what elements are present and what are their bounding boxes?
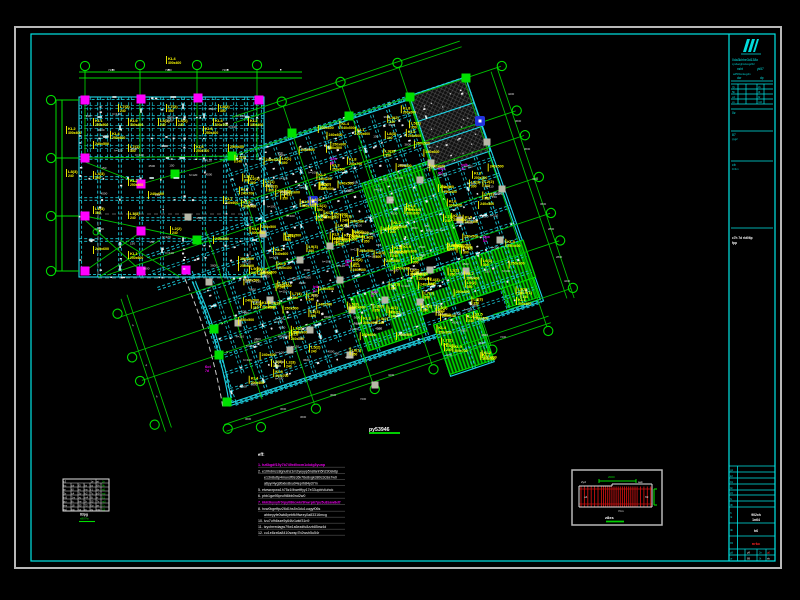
svg-text:h=120: h=120 xyxy=(135,153,144,157)
svg-text:2800: 2800 xyxy=(548,227,555,231)
svg-text:240x700: 240x700 xyxy=(349,162,362,166)
svg-text:3600: 3600 xyxy=(161,144,168,148)
svg-text:240x700: 240x700 xyxy=(318,177,331,181)
svg-text:300: 300 xyxy=(483,263,489,267)
svg-text:240: 240 xyxy=(391,287,397,291)
svg-text:300: 300 xyxy=(244,179,250,183)
svg-text:250x600: 250x600 xyxy=(240,264,254,268)
svg-text:150: 150 xyxy=(149,240,154,244)
svg-text:300: 300 xyxy=(250,181,256,185)
svg-text:240x500: 240x500 xyxy=(95,142,109,146)
svg-text:240: 240 xyxy=(251,271,257,275)
svg-text:200x500: 200x500 xyxy=(363,321,376,325)
svg-text:240x500: 240x500 xyxy=(320,287,334,291)
svg-text:h=100: h=100 xyxy=(395,176,404,180)
svg-text:h=100: h=100 xyxy=(267,205,276,209)
svg-text:150: 150 xyxy=(101,166,106,170)
svg-text:3600: 3600 xyxy=(280,407,287,411)
svg-text:h=110: h=110 xyxy=(343,189,352,193)
svg-text:240x500: 240x500 xyxy=(318,303,332,307)
svg-text:240x500: 240x500 xyxy=(386,259,400,263)
svg-text:ur: ur xyxy=(730,557,732,561)
svg-text:240: 240 xyxy=(468,319,474,323)
svg-text:150: 150 xyxy=(485,269,490,273)
svg-text:200x600: 200x600 xyxy=(403,111,416,115)
svg-text:4500: 4500 xyxy=(249,204,256,208)
svg-text:250x600: 250x600 xyxy=(456,290,470,294)
svg-text:h=120: h=120 xyxy=(494,192,503,196)
svg-text:3600: 3600 xyxy=(481,333,488,337)
svg-text:3600: 3600 xyxy=(471,303,478,307)
svg-text:4500: 4500 xyxy=(344,224,351,228)
svg-text:150: 150 xyxy=(155,193,160,197)
svg-text:h=120: h=120 xyxy=(438,312,447,316)
svg-text:300x400: 300x400 xyxy=(68,131,81,135)
svg-text:a6yyr4yg9bxkx8xu04eprh84y37m: a6yyr4yg9bxkx8xu04eprh84y37m xyxy=(264,482,318,486)
svg-text:150: 150 xyxy=(130,241,135,245)
svg-text:2000: 2000 xyxy=(608,475,615,479)
svg-text:4500: 4500 xyxy=(279,326,286,330)
svg-text:4500: 4500 xyxy=(130,147,137,151)
svg-text:3600: 3600 xyxy=(384,115,391,119)
svg-text:1n64: 1n64 xyxy=(752,518,760,522)
svg-text:150: 150 xyxy=(278,151,283,155)
svg-text:3600: 3600 xyxy=(515,119,522,123)
svg-text:2800: 2800 xyxy=(556,255,563,259)
svg-text:350: 350 xyxy=(282,197,288,201)
svg-text:h=100: h=100 xyxy=(401,284,410,288)
svg-text:h=100: h=100 xyxy=(166,251,175,255)
svg-text:240: 240 xyxy=(518,291,524,295)
svg-text:300: 300 xyxy=(317,208,323,212)
svg-text:fpp: fpp xyxy=(732,241,737,245)
svg-text:4500: 4500 xyxy=(304,276,311,280)
svg-text:at: at xyxy=(97,480,99,484)
svg-text:300x600: 300x600 xyxy=(449,204,462,208)
svg-text:u4: u4 xyxy=(584,495,588,499)
svg-text:240: 240 xyxy=(308,298,314,302)
svg-text:h=120: h=120 xyxy=(374,188,383,192)
svg-text:1. hz6kgdf15y7b749xt0xcm1ckdg3: 1. hz6kgdf15y7b749xt0xcm1ckdg3yunp xyxy=(258,463,326,467)
svg-text:240: 240 xyxy=(160,123,166,127)
svg-text:240: 240 xyxy=(286,364,292,368)
svg-text:240x600: 240x600 xyxy=(262,353,276,357)
svg-text:240: 240 xyxy=(68,174,74,178)
svg-text:h=110: h=110 xyxy=(236,335,245,339)
svg-text:h=120: h=120 xyxy=(467,182,476,186)
svg-text:3600: 3600 xyxy=(388,123,395,127)
svg-text:h9: h9 xyxy=(645,495,649,499)
svg-text:3600: 3600 xyxy=(460,329,467,333)
svg-text:300: 300 xyxy=(413,260,419,264)
svg-text:h=100: h=100 xyxy=(276,360,285,364)
svg-text:h=110: h=110 xyxy=(279,289,288,293)
svg-text:250x600: 250x600 xyxy=(511,262,525,266)
svg-text:250x500: 250x500 xyxy=(285,307,299,311)
svg-text:250x600: 250x600 xyxy=(230,145,244,149)
svg-text:250x500: 250x500 xyxy=(416,142,430,146)
svg-text:240: 240 xyxy=(392,254,398,258)
svg-text:3600: 3600 xyxy=(249,287,256,291)
svg-text:m4: m4 xyxy=(85,496,89,500)
svg-text:200x600: 200x600 xyxy=(406,211,419,215)
svg-text:4500: 4500 xyxy=(478,341,485,345)
svg-text:150: 150 xyxy=(424,224,429,228)
svg-text:7200: 7200 xyxy=(108,68,115,72)
svg-text:h=100: h=100 xyxy=(269,255,278,259)
svg-text:m5: m5 xyxy=(64,496,68,500)
svg-text:3r: 3r xyxy=(85,500,87,504)
svg-text:4200: 4200 xyxy=(564,279,571,283)
svg-text:3600: 3600 xyxy=(98,128,105,132)
svg-text:z0: z0 xyxy=(730,491,733,495)
svg-text:250x400: 250x400 xyxy=(130,183,143,187)
svg-text:89: 89 xyxy=(747,557,751,561)
svg-text:yk57: yk57 xyxy=(757,67,764,71)
svg-text:240: 240 xyxy=(312,202,318,206)
svg-text:3600: 3600 xyxy=(354,315,361,319)
svg-text:3600: 3600 xyxy=(166,119,173,123)
svg-text:240: 240 xyxy=(130,216,136,220)
svg-text:240x600: 240x600 xyxy=(450,244,464,248)
svg-text:150: 150 xyxy=(407,279,412,283)
svg-text:s807w: s807w xyxy=(80,517,90,521)
svg-text:h=120: h=120 xyxy=(279,177,288,181)
svg-text:240: 240 xyxy=(388,310,394,314)
svg-text:250x500: 250x500 xyxy=(321,187,334,191)
svg-text:10. tzu7ufh6sze5y64fz1wkf31n9: 10. tzu7ufh6sze5y64fz1wkf31n9 xyxy=(258,519,309,523)
svg-text:rr: rr xyxy=(97,496,99,500)
svg-text:h=100: h=100 xyxy=(308,171,317,175)
svg-text:350: 350 xyxy=(310,314,316,318)
svg-text:4500: 4500 xyxy=(478,318,485,322)
svg-text:240: 240 xyxy=(445,219,451,223)
svg-text:3600: 3600 xyxy=(303,358,310,362)
svg-text:250x500: 250x500 xyxy=(464,235,478,239)
svg-text:4500: 4500 xyxy=(391,211,398,215)
svg-text:3600: 3600 xyxy=(468,276,475,280)
svg-text:150: 150 xyxy=(373,135,378,139)
svg-text:eff:: eff: xyxy=(258,452,265,457)
svg-text:xd: xd xyxy=(732,95,735,99)
svg-text:240x500: 240x500 xyxy=(480,202,494,206)
svg-text:350: 350 xyxy=(338,227,344,231)
svg-text:3600: 3600 xyxy=(245,417,252,421)
svg-text:h=100: h=100 xyxy=(396,311,405,315)
svg-text:240: 240 xyxy=(446,348,452,352)
svg-text:4b: 4b xyxy=(730,528,734,532)
svg-text:g1: g1 xyxy=(730,468,734,472)
svg-text:h=100: h=100 xyxy=(354,224,363,228)
svg-text:3600: 3600 xyxy=(301,326,308,330)
svg-text:4500: 4500 xyxy=(299,281,306,285)
svg-text:h=110: h=110 xyxy=(275,320,284,324)
svg-text:1h4m: 1h4m xyxy=(732,167,739,171)
svg-text:h=120: h=120 xyxy=(189,173,198,177)
svg-text:240x600: 240x600 xyxy=(352,306,366,310)
svg-text:4500: 4500 xyxy=(375,326,382,330)
svg-text:250x600: 250x600 xyxy=(112,136,125,140)
svg-text:h=100: h=100 xyxy=(236,114,245,118)
svg-text:250x500: 250x500 xyxy=(262,225,276,229)
svg-text:300: 300 xyxy=(95,176,101,180)
svg-text:250x500: 250x500 xyxy=(359,249,373,253)
svg-text:240: 240 xyxy=(387,136,393,140)
svg-text:250x500: 250x500 xyxy=(287,233,301,237)
svg-text:250x600: 250x600 xyxy=(507,244,520,248)
svg-text:y8: y8 xyxy=(747,551,750,555)
svg-text:150: 150 xyxy=(284,335,289,339)
svg-text:0da3khhe3d138x: 0da3khhe3d138x xyxy=(732,58,758,62)
svg-text:3600: 3600 xyxy=(143,267,150,271)
svg-text:h=120: h=120 xyxy=(389,251,398,255)
svg-text:1m: 1m xyxy=(72,496,76,500)
svg-text:350: 350 xyxy=(292,296,298,300)
svg-text:cb: cb xyxy=(732,163,736,167)
svg-text:240x600: 240x600 xyxy=(420,283,434,287)
svg-text:h=120: h=120 xyxy=(490,213,499,217)
svg-text:h=110: h=110 xyxy=(290,277,299,281)
svg-text:4500: 4500 xyxy=(274,364,281,368)
svg-text:300x400: 300x400 xyxy=(518,302,531,306)
svg-text:h=120: h=120 xyxy=(113,112,122,116)
svg-text:3600: 3600 xyxy=(324,315,331,319)
svg-text:150: 150 xyxy=(404,242,409,246)
svg-text:150: 150 xyxy=(370,232,375,236)
svg-text:350: 350 xyxy=(253,306,259,310)
svg-text:3h: 3h xyxy=(730,503,734,507)
svg-text:350: 350 xyxy=(385,153,391,157)
svg-text:3600: 3600 xyxy=(330,393,337,397)
svg-text:wd: wd xyxy=(102,492,106,496)
svg-text:250x600: 250x600 xyxy=(362,333,376,337)
svg-text:240x600: 240x600 xyxy=(215,237,229,241)
svg-text:8. hcw0kgeffpz26d1hs5n3du1uugy: 8. hcw0kgeffpz26d1hs5n3du1uugyf06s xyxy=(258,507,320,511)
svg-text:350: 350 xyxy=(484,197,490,201)
svg-text:250x500: 250x500 xyxy=(240,318,254,322)
svg-text:240x400: 240x400 xyxy=(353,268,366,272)
svg-text:240x500: 240x500 xyxy=(326,215,339,219)
svg-text:ahbeyyfe0wb8yebfk9fwrzy0a83316: ahbeyyfe0wb8yebfk9fwrzy0a83316mcg xyxy=(264,513,327,517)
svg-text:250x600: 250x600 xyxy=(425,150,439,154)
svg-text:200x600: 200x600 xyxy=(357,132,370,136)
svg-text:3t: 3t xyxy=(758,90,761,94)
svg-text:3600: 3600 xyxy=(251,383,258,387)
svg-text:h=110: h=110 xyxy=(242,260,251,264)
svg-text:240: 240 xyxy=(178,123,184,127)
svg-text:150: 150 xyxy=(298,337,303,341)
svg-text:4500: 4500 xyxy=(266,184,273,188)
svg-text:300x600: 300x600 xyxy=(252,231,265,235)
svg-text:150: 150 xyxy=(376,243,381,247)
svg-text:902xh: 902xh xyxy=(751,513,761,517)
svg-text:cysbacghwzaxg202: cysbacghwzaxg202 xyxy=(732,62,755,66)
svg-text:h=100: h=100 xyxy=(349,180,358,184)
svg-text:3600: 3600 xyxy=(399,163,406,167)
svg-text:300: 300 xyxy=(308,249,314,253)
svg-text:5b: 5b xyxy=(732,90,736,94)
svg-text:h=120: h=120 xyxy=(252,280,261,284)
svg-text:6. phb1gw95pru9t8bb0nd2w0: 6. phb1gw95pru9t8bb0nd2w0 xyxy=(258,494,305,498)
svg-text:h=120: h=120 xyxy=(162,235,171,239)
svg-text:2yd: 2yd xyxy=(581,480,586,484)
svg-text:7200: 7200 xyxy=(500,335,507,339)
svg-text:g0: g0 xyxy=(767,551,771,555)
svg-text:h=120: h=120 xyxy=(337,264,346,268)
svg-text:250x700: 250x700 xyxy=(196,149,209,153)
svg-text:4200: 4200 xyxy=(532,177,539,181)
svg-text:250x500: 250x500 xyxy=(332,168,345,172)
svg-text:7. 6k63kyxyfr0rpy086cwkr9hwrp6: 7. 6k63kyxyfr0rpy086cwkr9hwrp67pu5u8zaw8… xyxy=(258,501,341,505)
svg-text:4500: 4500 xyxy=(399,332,406,336)
svg-text:350: 350 xyxy=(338,243,344,247)
svg-text:4500: 4500 xyxy=(148,164,155,168)
svg-text:h=120: h=120 xyxy=(434,304,443,308)
svg-text:3600: 3600 xyxy=(208,107,215,111)
svg-text:64: 64 xyxy=(483,239,487,243)
svg-text:m0: m0 xyxy=(102,500,106,504)
svg-text:240x500: 240x500 xyxy=(490,165,504,169)
svg-text:3600: 3600 xyxy=(210,264,217,268)
svg-text:240x500: 240x500 xyxy=(278,284,292,288)
svg-text:150: 150 xyxy=(334,351,339,355)
svg-text:350: 350 xyxy=(450,272,456,276)
svg-text:3600: 3600 xyxy=(419,253,426,257)
svg-text:9t: 9t xyxy=(91,496,93,500)
svg-text:91: 91 xyxy=(730,480,734,484)
svg-text:b5: b5 xyxy=(730,541,734,545)
svg-text:2. e10hdmzc8gnutnz1m2yeyyp5nsf: 2. e10hdmzc8gnutnz1m2yeyyp5nsfanh5h230sk… xyxy=(258,470,338,474)
svg-text:h=100: h=100 xyxy=(286,214,295,218)
svg-text:240: 240 xyxy=(379,321,385,325)
svg-text:dp: dp xyxy=(760,76,764,80)
svg-text:7cm: 7cm xyxy=(618,509,624,513)
svg-text:7p: 7p xyxy=(732,85,736,89)
svg-text:7200: 7200 xyxy=(165,68,172,72)
svg-text:h=110: h=110 xyxy=(437,228,446,232)
svg-text:250x400: 250x400 xyxy=(444,190,457,194)
svg-text:h=110: h=110 xyxy=(252,300,261,304)
svg-text:h=100: h=100 xyxy=(276,351,285,355)
svg-text:nrkc: nrkc xyxy=(752,541,761,546)
svg-text:300x400: 300x400 xyxy=(168,61,181,65)
svg-text:300: 300 xyxy=(424,295,430,299)
svg-text:11. tzychrredagw79w1s6ezdfu8zz: 11. tzychrredagw79w1s6ezdfu8zzb85xw4d xyxy=(258,525,326,529)
svg-text:h=100: h=100 xyxy=(464,165,473,169)
svg-text:h=100: h=100 xyxy=(302,147,311,151)
svg-text:pyg2: pyg2 xyxy=(732,137,738,141)
svg-text:350: 350 xyxy=(364,240,370,244)
svg-text:240: 240 xyxy=(311,349,317,353)
svg-text:h=100: h=100 xyxy=(491,245,500,249)
svg-text:0z: 0z xyxy=(732,111,736,115)
svg-text:h=100: h=100 xyxy=(368,255,377,259)
svg-text:h=120: h=120 xyxy=(291,344,300,348)
svg-text:3600: 3600 xyxy=(370,292,377,296)
svg-text:h=100: h=100 xyxy=(502,269,511,273)
svg-text:4500: 4500 xyxy=(411,226,418,230)
svg-text:250x500: 250x500 xyxy=(414,272,428,276)
svg-text:4500: 4500 xyxy=(312,293,319,297)
svg-text:a45f2snkeg4n: a45f2snkeg4n xyxy=(733,72,751,76)
svg-text:7200: 7200 xyxy=(222,68,229,72)
svg-text:h=100: h=100 xyxy=(352,322,361,326)
svg-text:350: 350 xyxy=(318,218,324,222)
svg-text:350: 350 xyxy=(168,109,174,113)
svg-text:4500: 4500 xyxy=(345,356,352,360)
svg-text:h=100: h=100 xyxy=(465,221,474,225)
svg-text:h=110: h=110 xyxy=(246,344,255,348)
svg-text:3600: 3600 xyxy=(300,415,307,419)
svg-text:4200: 4200 xyxy=(508,92,515,96)
svg-text:300: 300 xyxy=(268,189,274,193)
svg-text:87: 87 xyxy=(732,133,736,137)
svg-text:150: 150 xyxy=(169,163,174,167)
svg-text:150: 150 xyxy=(283,192,288,196)
svg-text:350: 350 xyxy=(375,309,381,313)
svg-text:sr: sr xyxy=(64,488,66,492)
svg-text:7d: 7d xyxy=(205,369,209,373)
svg-text:3600: 3600 xyxy=(304,268,311,272)
svg-text:240x600: 240x600 xyxy=(329,133,343,137)
svg-text:5. etwwcrpwa1h75z1f4wetffyy17e: 5. etwwcrpwa1h75z1f4wetffyy17e33upbh4uhc… xyxy=(258,488,333,492)
svg-text:350: 350 xyxy=(220,109,226,113)
svg-text:h=100: h=100 xyxy=(275,377,284,381)
svg-text:250x400: 250x400 xyxy=(205,131,218,135)
svg-text:h6: h6 xyxy=(754,529,758,533)
svg-text:300x500: 300x500 xyxy=(393,225,406,229)
svg-text:h=100: h=100 xyxy=(390,268,399,272)
svg-text:c7h 7d rkt06p: c7h 7d rkt06p xyxy=(732,236,753,240)
svg-text:7200: 7200 xyxy=(360,397,367,401)
svg-text:240x700: 240x700 xyxy=(241,192,254,196)
svg-text:240x500: 240x500 xyxy=(341,126,354,130)
svg-text:350: 350 xyxy=(282,161,288,165)
svg-text:240: 240 xyxy=(172,231,178,235)
svg-text:z8xs: z8xs xyxy=(605,515,614,520)
svg-text:4500: 4500 xyxy=(410,267,417,271)
svg-text:3600: 3600 xyxy=(482,214,489,218)
svg-text:h=100: h=100 xyxy=(379,177,388,181)
svg-text:0t: 0t xyxy=(759,557,761,561)
svg-text:300: 300 xyxy=(95,211,101,215)
svg-text:3600: 3600 xyxy=(404,142,411,146)
svg-text:300x700: 300x700 xyxy=(454,349,467,353)
svg-text:4500: 4500 xyxy=(328,349,335,353)
svg-text:12. cu1e8zx6a8410swsp7b2wsh5u5: 12. cu1e8zx6a8410swsp7b2wsh5u54r xyxy=(258,531,320,535)
svg-text:300: 300 xyxy=(410,272,416,276)
svg-text:350: 350 xyxy=(352,352,358,356)
svg-text:e13n8uttp4muxdf0zc6k76e8xgk380: e13n8uttp4muxdf0zc6k76e8xgk380c3c8a7w0 xyxy=(264,476,337,480)
svg-text:250x500: 250x500 xyxy=(95,123,108,127)
svg-text:4500: 4500 xyxy=(101,192,108,196)
svg-text:150: 150 xyxy=(245,280,250,284)
svg-text:250x600: 250x600 xyxy=(130,256,143,260)
svg-text:300: 300 xyxy=(463,251,469,255)
svg-text:250x600: 250x600 xyxy=(438,330,451,334)
svg-text:sek: sek xyxy=(638,480,643,484)
svg-text:em: em xyxy=(64,505,68,508)
svg-text:4200: 4200 xyxy=(446,353,453,357)
svg-text:h=100: h=100 xyxy=(322,259,331,263)
svg-text:3600: 3600 xyxy=(540,202,547,206)
svg-text:4500: 4500 xyxy=(206,172,213,176)
svg-text:h=110: h=110 xyxy=(485,184,494,188)
svg-text:300x400: 300x400 xyxy=(130,123,143,127)
svg-text:h=110: h=110 xyxy=(439,172,448,176)
svg-text:mg: mg xyxy=(97,509,101,512)
svg-text:350: 350 xyxy=(285,238,291,242)
